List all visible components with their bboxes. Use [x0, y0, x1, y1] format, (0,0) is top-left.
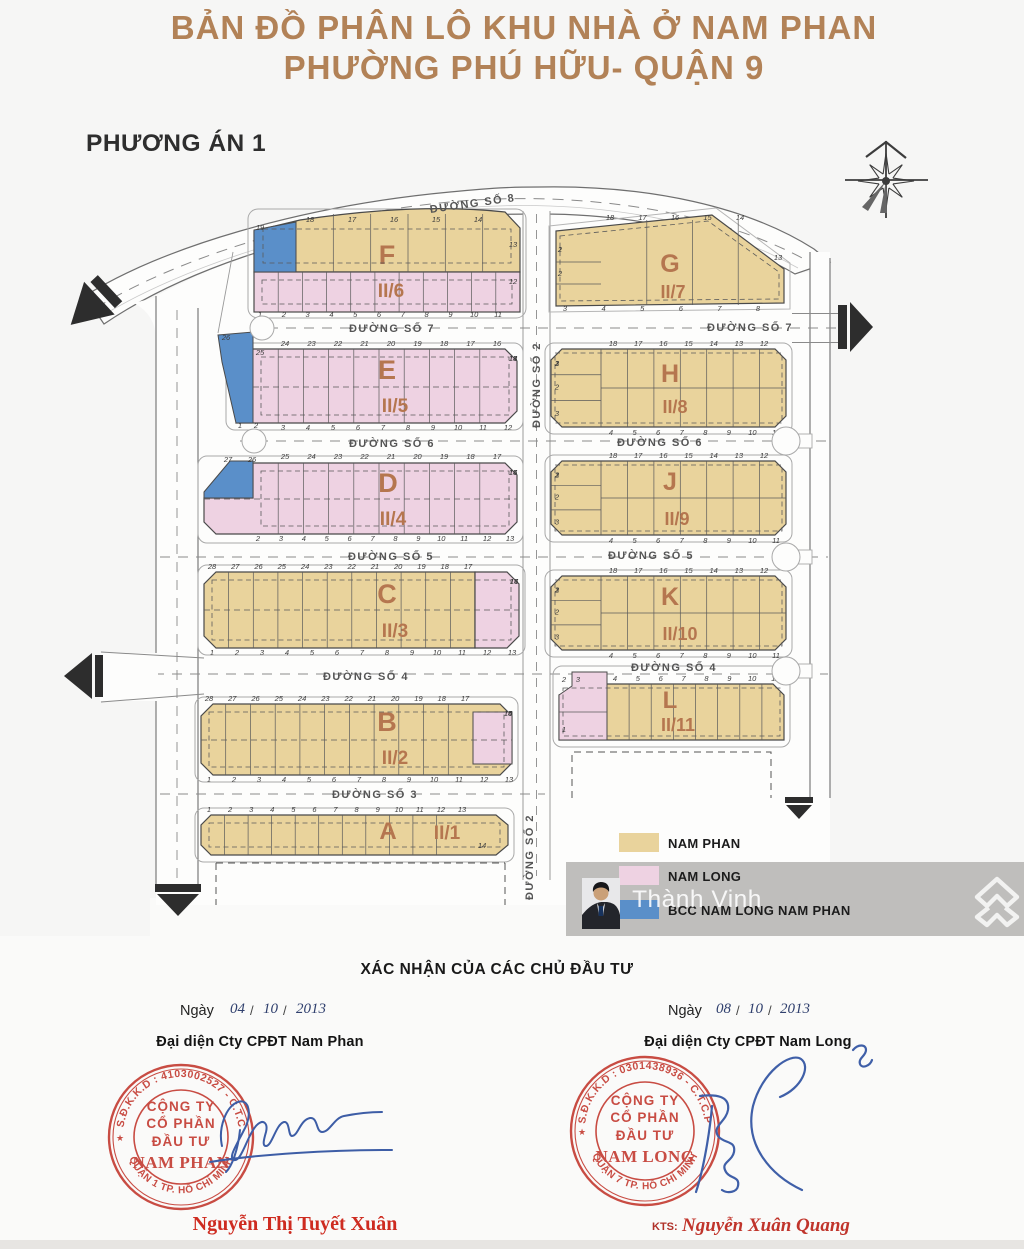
svg-text:18: 18: [609, 566, 618, 575]
svg-text:Đại diện Cty CPĐT Nam Long: Đại diện Cty CPĐT Nam Long: [644, 1034, 851, 1050]
svg-text:2: 2: [554, 383, 560, 392]
svg-text:14: 14: [509, 468, 517, 477]
svg-text:Ngày: Ngày: [668, 1003, 703, 1019]
svg-text:17: 17: [634, 451, 643, 460]
svg-text:13: 13: [509, 354, 518, 363]
svg-text:13: 13: [508, 648, 517, 657]
svg-text:21: 21: [367, 694, 376, 703]
svg-text:2: 2: [557, 269, 563, 278]
svg-text:Nguyễn Xuân Quang: Nguyễn Xuân Quang: [681, 1215, 850, 1236]
svg-text:24: 24: [297, 694, 306, 703]
svg-text:II/3: II/3: [382, 621, 408, 642]
svg-text:A: A: [379, 818, 396, 845]
svg-text:24: 24: [306, 452, 315, 461]
svg-text:13: 13: [505, 775, 514, 784]
svg-text:L: L: [663, 687, 678, 714]
svg-text:II/5: II/5: [382, 396, 409, 417]
svg-text:11: 11: [494, 310, 502, 319]
svg-text:11: 11: [772, 536, 780, 545]
svg-text:11: 11: [479, 423, 487, 432]
svg-text:4: 4: [270, 805, 274, 814]
svg-text:22: 22: [343, 694, 353, 703]
svg-text:26: 26: [250, 694, 260, 703]
svg-text:18: 18: [606, 213, 615, 222]
svg-text:4: 4: [613, 674, 617, 683]
svg-text:1: 1: [562, 725, 566, 734]
svg-text:2: 2: [554, 492, 560, 501]
svg-text:ĐẦU TƯ: ĐẦU TƯ: [616, 1128, 674, 1143]
svg-text:10: 10: [433, 648, 442, 657]
svg-text:12: 12: [483, 534, 492, 543]
svg-text:NAM PHAN: NAM PHAN: [132, 1153, 229, 1172]
svg-text:10: 10: [454, 423, 463, 432]
svg-text:12: 12: [760, 451, 769, 460]
svg-text:★: ★: [116, 1133, 124, 1143]
svg-text:15: 15: [684, 339, 693, 348]
svg-text:10: 10: [470, 310, 479, 319]
svg-text:10: 10: [430, 775, 439, 784]
svg-text:26: 26: [221, 333, 231, 342]
svg-text:12: 12: [760, 339, 769, 348]
svg-text:08: 08: [716, 1001, 732, 1017]
svg-text:K: K: [661, 583, 679, 611]
svg-text:10: 10: [748, 674, 757, 683]
svg-text:19: 19: [440, 452, 449, 461]
svg-text:18: 18: [609, 339, 618, 348]
svg-text:14: 14: [478, 841, 486, 850]
svg-text:ĐƯỜNG SỐ 7: ĐƯỜNG SỐ 7: [349, 321, 435, 335]
svg-text:14: 14: [510, 577, 518, 586]
svg-text:13: 13: [506, 534, 515, 543]
svg-text:18: 18: [609, 451, 618, 460]
svg-text:/: /: [736, 1003, 740, 1018]
svg-text:ĐƯỜNG SỐ 6: ĐƯỜNG SỐ 6: [349, 436, 435, 450]
svg-text:II/4: II/4: [380, 509, 407, 530]
svg-text:4: 4: [302, 534, 306, 543]
svg-text:28: 28: [204, 694, 214, 703]
svg-text:4: 4: [329, 310, 333, 319]
svg-text:18: 18: [441, 562, 450, 571]
svg-text:24: 24: [280, 339, 289, 348]
svg-text:16: 16: [659, 451, 668, 460]
svg-text:4: 4: [609, 428, 613, 437]
svg-text:18: 18: [438, 694, 447, 703]
svg-text:2: 2: [227, 805, 233, 814]
svg-text:10: 10: [395, 805, 404, 814]
svg-text:25: 25: [255, 348, 265, 357]
svg-text:KTS:: KTS:: [652, 1221, 678, 1233]
svg-text:II/1: II/1: [434, 823, 461, 844]
svg-text:F: F: [379, 240, 396, 270]
svg-text:11: 11: [458, 648, 466, 657]
svg-text:CỘNG TY: CỘNG TY: [611, 1093, 680, 1108]
svg-text:2: 2: [554, 607, 560, 616]
svg-text:ĐƯỜNG SỐ 6: ĐƯỜNG SỐ 6: [617, 435, 703, 449]
svg-text:17: 17: [348, 215, 357, 224]
svg-text:14: 14: [504, 709, 512, 718]
svg-text:D: D: [378, 468, 398, 498]
svg-text:J: J: [663, 468, 677, 496]
svg-text:G: G: [660, 250, 679, 278]
svg-text:18: 18: [440, 339, 449, 348]
svg-text:12: 12: [480, 775, 489, 784]
svg-text:14: 14: [709, 451, 717, 460]
svg-text:19: 19: [414, 694, 423, 703]
svg-text:17: 17: [634, 566, 643, 575]
svg-text:11: 11: [460, 534, 468, 543]
svg-text:ĐƯỜNG SỐ 2: ĐƯỜNG SỐ 2: [529, 342, 543, 428]
svg-text:ĐƯỜNG SỐ 2: ĐƯỜNG SỐ 2: [522, 814, 536, 900]
svg-text:21: 21: [370, 562, 379, 571]
svg-text:4: 4: [609, 536, 613, 545]
svg-text:14: 14: [709, 339, 717, 348]
svg-text:22: 22: [359, 452, 369, 461]
svg-text:1: 1: [207, 775, 211, 784]
svg-text:4: 4: [602, 304, 606, 313]
svg-text:17: 17: [461, 694, 470, 703]
svg-text:NAM LONG: NAM LONG: [596, 1147, 695, 1166]
svg-text:4: 4: [609, 651, 613, 660]
svg-text:II/7: II/7: [660, 282, 685, 302]
svg-text:23: 23: [320, 694, 330, 703]
svg-text:2: 2: [561, 675, 567, 684]
svg-text:26: 26: [253, 562, 263, 571]
svg-text:2: 2: [255, 534, 261, 543]
svg-text:10: 10: [748, 1001, 764, 1017]
svg-text:25: 25: [280, 452, 290, 461]
svg-text:19: 19: [256, 223, 265, 232]
svg-text:C: C: [377, 579, 397, 609]
svg-text:12: 12: [483, 648, 492, 657]
svg-text:XÁC NHẬN CỦA CÁC CHỦ ĐẦU TƯ: XÁC NHẬN CỦA CÁC CHỦ ĐẦU TƯ: [361, 960, 634, 978]
svg-text:13: 13: [509, 240, 518, 249]
svg-text:2: 2: [281, 310, 287, 319]
svg-text:22: 22: [333, 339, 343, 348]
svg-text:1: 1: [207, 805, 211, 814]
svg-text:II/2: II/2: [382, 748, 408, 769]
svg-text:12: 12: [504, 423, 513, 432]
svg-text:23: 23: [306, 339, 316, 348]
svg-text:14: 14: [709, 566, 717, 575]
svg-text:04: 04: [230, 1001, 246, 1017]
svg-text:ĐƯỜNG SỐ 5: ĐƯỜNG SỐ 5: [608, 548, 694, 562]
svg-text:2013: 2013: [780, 1001, 810, 1017]
svg-text:20: 20: [393, 562, 403, 571]
svg-text:CỔ PHẦN: CỔ PHẦN: [146, 1116, 215, 1131]
svg-text:20: 20: [390, 694, 400, 703]
svg-text:17: 17: [638, 213, 647, 222]
svg-text:14: 14: [736, 213, 744, 222]
svg-text:BẢN ĐỒ PHÂN LÔ KHU NHÀ Ở NAM P: BẢN ĐỒ PHÂN LÔ KHU NHÀ Ở NAM PHAN: [171, 8, 877, 46]
svg-text:2: 2: [557, 245, 563, 254]
svg-text:ĐƯỜNG SỐ 7: ĐƯỜNG SỐ 7: [707, 320, 793, 334]
svg-text:1: 1: [238, 421, 242, 430]
svg-text:12: 12: [437, 805, 446, 814]
svg-text:17: 17: [466, 339, 475, 348]
svg-text:Nguyễn Thị Tuyết Xuân: Nguyễn Thị Tuyết Xuân: [193, 1213, 398, 1235]
svg-text:18: 18: [466, 452, 475, 461]
svg-text:13: 13: [735, 339, 744, 348]
svg-text:12: 12: [760, 566, 769, 575]
svg-text:19: 19: [417, 562, 426, 571]
svg-text:/: /: [283, 1003, 287, 1018]
svg-text:27: 27: [223, 455, 233, 464]
svg-text:II/10: II/10: [662, 624, 697, 644]
svg-text:ĐƯỜNG SỐ 4: ĐƯỜNG SỐ 4: [323, 669, 409, 683]
svg-text:17: 17: [464, 562, 473, 571]
svg-text:ĐẦU TƯ: ĐẦU TƯ: [152, 1134, 210, 1149]
svg-text:16: 16: [659, 566, 668, 575]
svg-text:25: 25: [274, 694, 284, 703]
svg-text:26: 26: [247, 455, 257, 464]
svg-text:15: 15: [684, 451, 693, 460]
svg-text:10: 10: [748, 428, 757, 437]
svg-text:13: 13: [458, 805, 467, 814]
svg-text:23: 23: [323, 562, 333, 571]
svg-text:13: 13: [774, 253, 783, 262]
svg-text:ĐƯỜNG SỐ 5: ĐƯỜNG SỐ 5: [348, 549, 434, 563]
svg-text:16: 16: [390, 215, 399, 224]
svg-text:2: 2: [231, 775, 237, 784]
svg-text:21: 21: [359, 339, 368, 348]
svg-text:10: 10: [437, 534, 446, 543]
svg-text:ĐƯỜNG SỐ 3: ĐƯỜNG SỐ 3: [332, 787, 418, 801]
svg-text:22: 22: [346, 562, 356, 571]
svg-text:16: 16: [659, 339, 668, 348]
svg-text:13: 13: [735, 566, 744, 575]
svg-text:II/6: II/6: [378, 281, 404, 302]
svg-text:II/11: II/11: [661, 715, 695, 735]
svg-text:2013: 2013: [296, 1001, 326, 1017]
svg-text:CỔ PHẦN: CỔ PHẦN: [610, 1110, 679, 1125]
svg-text:II/8: II/8: [662, 397, 687, 417]
svg-text:H: H: [661, 360, 679, 388]
svg-text:15: 15: [703, 213, 712, 222]
svg-text:11: 11: [416, 805, 424, 814]
svg-text:14: 14: [474, 215, 482, 224]
svg-text:4: 4: [285, 648, 289, 657]
svg-text:21: 21: [386, 452, 395, 461]
svg-text:Ngày: Ngày: [180, 1003, 215, 1019]
svg-text:17: 17: [493, 452, 502, 461]
svg-text:4: 4: [306, 423, 310, 432]
svg-text:27: 27: [230, 562, 240, 571]
svg-text:CỘNG TY: CỘNG TY: [147, 1099, 216, 1114]
svg-text:NAM PHAN: NAM PHAN: [668, 836, 740, 851]
svg-text:28: 28: [207, 562, 217, 571]
svg-text:10: 10: [748, 536, 757, 545]
svg-text:Đại diện Cty CPĐT Nam Phan: Đại diện Cty CPĐT Nam Phan: [156, 1034, 363, 1050]
svg-text:NAM LONG: NAM LONG: [668, 869, 741, 884]
svg-text:15: 15: [684, 566, 693, 575]
svg-text:II/9: II/9: [664, 509, 689, 529]
svg-text:17: 17: [634, 339, 643, 348]
svg-text:ĐƯỜNG SỐ 4: ĐƯỜNG SỐ 4: [631, 660, 717, 674]
svg-text:18: 18: [306, 215, 315, 224]
svg-text:16: 16: [493, 339, 502, 348]
svg-text:23: 23: [333, 452, 343, 461]
svg-text:16: 16: [671, 213, 680, 222]
svg-text:/: /: [250, 1003, 254, 1018]
svg-text:Thành Vinh: Thành Vinh: [632, 886, 762, 913]
svg-text:/: /: [768, 1003, 772, 1018]
svg-text:PHƯƠNG ÁN 1: PHƯƠNG ÁN 1: [86, 129, 266, 157]
svg-text:10: 10: [748, 651, 757, 660]
svg-text:20: 20: [412, 452, 422, 461]
svg-text:4: 4: [282, 775, 286, 784]
svg-text:B: B: [377, 707, 397, 737]
svg-text:PHƯỜNG PHÚ HỮU- QUẬN 9: PHƯỜNG PHÚ HỮU- QUẬN 9: [284, 49, 765, 86]
svg-text:27: 27: [227, 694, 237, 703]
svg-text:11: 11: [455, 775, 463, 784]
svg-text:19: 19: [413, 339, 422, 348]
svg-text:2: 2: [234, 648, 240, 657]
svg-text:20: 20: [386, 339, 396, 348]
svg-text:12: 12: [509, 277, 518, 286]
svg-text:1: 1: [210, 648, 214, 657]
svg-text:10: 10: [263, 1001, 279, 1017]
svg-text:24: 24: [300, 562, 309, 571]
svg-text:13: 13: [735, 451, 744, 460]
svg-text:15: 15: [432, 215, 441, 224]
svg-text:25: 25: [277, 562, 287, 571]
svg-text:★: ★: [578, 1127, 586, 1137]
svg-text:E: E: [378, 355, 396, 385]
